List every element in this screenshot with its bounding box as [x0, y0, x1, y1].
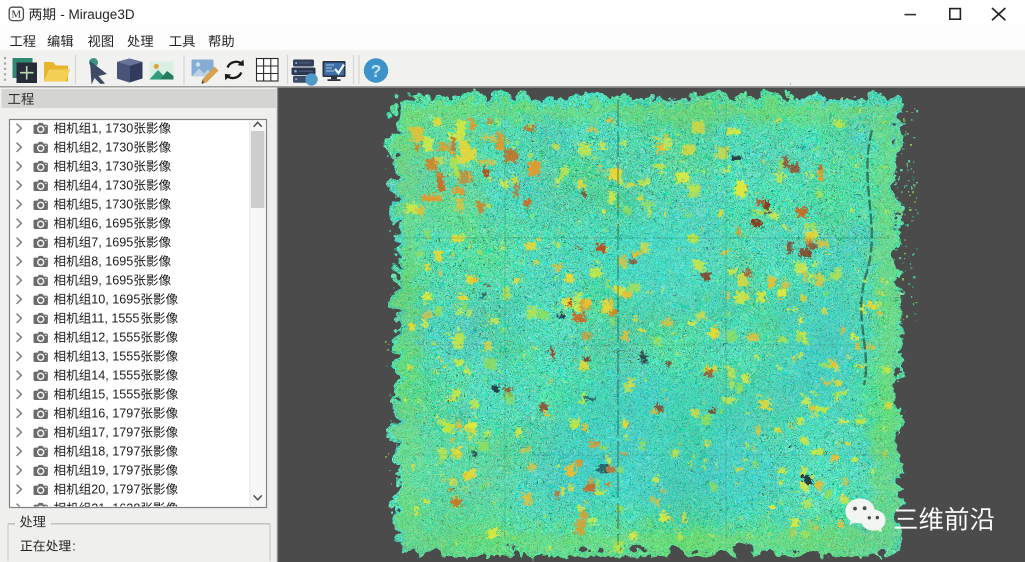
svg-text:12, 1555: 12, 1555	[91, 331, 140, 345]
svg-text:14, 1555: 14, 1555	[91, 369, 140, 383]
svg-text:M: M	[11, 9, 21, 21]
svg-text:13, 1555: 13, 1555	[91, 350, 140, 364]
svg-text:20, 1797: 20, 1797	[91, 483, 140, 497]
svg-text:17, 1797: 17, 1797	[91, 426, 140, 440]
svg-text:- Mirauge3D: - Mirauge3D	[60, 7, 135, 22]
svg-text:18, 1797: 18, 1797	[91, 445, 140, 459]
svg-text::: :	[72, 539, 76, 554]
svg-text:16, 1797: 16, 1797	[91, 407, 140, 421]
svg-text:1, 1730: 1, 1730	[91, 122, 133, 136]
svg-text:9, 1695: 9, 1695	[91, 274, 133, 288]
svg-text:15, 1555: 15, 1555	[91, 388, 140, 402]
svg-text:4, 1730: 4, 1730	[91, 179, 133, 193]
svg-text:8, 1695: 8, 1695	[91, 255, 133, 269]
svg-text:6, 1695: 6, 1695	[91, 217, 133, 231]
svg-text:?: ?	[371, 61, 382, 81]
svg-text:11, 1555: 11, 1555	[91, 312, 139, 326]
svg-text:3, 1730: 3, 1730	[91, 160, 133, 174]
svg-text:2, 1730: 2, 1730	[91, 141, 133, 155]
svg-text:19, 1797: 19, 1797	[91, 464, 140, 478]
svg-text:10, 1695: 10, 1695	[91, 293, 140, 307]
svg-text:5, 1730: 5, 1730	[91, 198, 133, 212]
svg-text:7, 1695: 7, 1695	[91, 236, 133, 250]
